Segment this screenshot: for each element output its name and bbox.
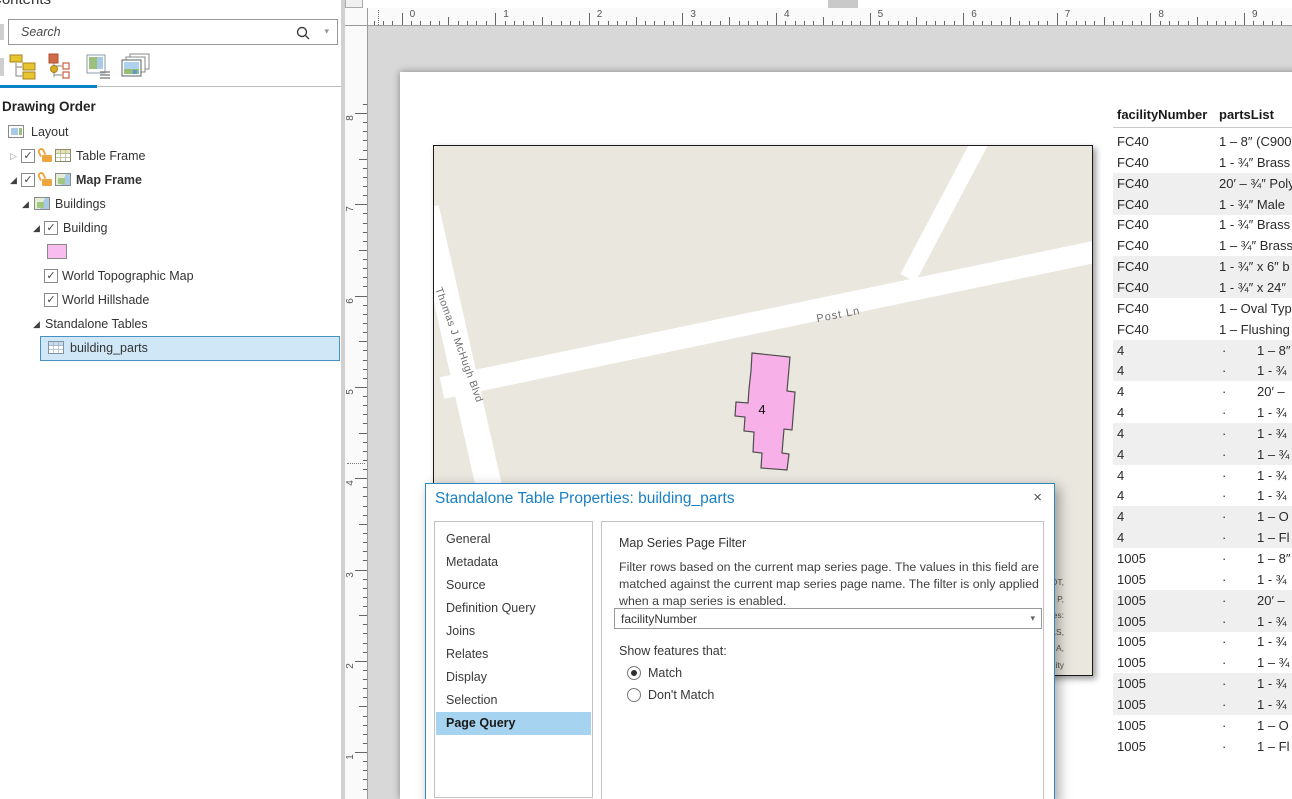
table-row: 1005·1 - ¾ bbox=[1113, 569, 1292, 590]
table-row: 1005·1 - ¾ bbox=[1113, 694, 1292, 715]
cell-partslist: 1 – 8″ bbox=[1257, 343, 1291, 358]
ruler-tick bbox=[363, 223, 368, 224]
ruler-tick bbox=[1160, 21, 1161, 26]
ruler-tick bbox=[1010, 17, 1011, 25]
table-row: 4·1 - ¾ bbox=[1113, 402, 1292, 423]
cell-partslist: 1 - ¾ bbox=[1257, 676, 1287, 691]
ruler-tick bbox=[363, 734, 368, 735]
vertical-ruler: 87654321 bbox=[345, 26, 368, 799]
ruler-tick bbox=[617, 21, 618, 26]
cell-facility: 1005 bbox=[1117, 572, 1146, 587]
ruler-tick bbox=[785, 21, 786, 26]
ruler-tick bbox=[359, 433, 367, 434]
cell-facility: 4 bbox=[1117, 447, 1124, 462]
cell-facility: 1005 bbox=[1117, 739, 1146, 754]
radio-label: Match bbox=[648, 666, 682, 680]
ruler-tick bbox=[359, 250, 367, 251]
cell-facility: FC40 bbox=[1117, 134, 1149, 149]
lock-icon bbox=[42, 155, 52, 162]
cell-dot: · bbox=[1222, 405, 1226, 420]
ruler-tick bbox=[392, 21, 393, 26]
ruler-tick bbox=[991, 21, 992, 26]
ruler-tick bbox=[551, 21, 552, 26]
ruler-tick bbox=[430, 21, 431, 26]
ruler-tick bbox=[363, 241, 368, 242]
tree-item-label: Building bbox=[63, 221, 107, 235]
ruler-tick bbox=[1047, 21, 1048, 26]
ruler-tick bbox=[363, 779, 368, 780]
ruler-number: 5 bbox=[878, 9, 884, 20]
table-row: 4·1 – 8″ bbox=[1113, 340, 1292, 361]
ruler-tick bbox=[870, 13, 871, 25]
ruler-tick bbox=[926, 21, 927, 26]
table-row: 4·1 - ¾ bbox=[1113, 423, 1292, 444]
tree-item-world-topographic-map[interactable]: ✓World Topographic Map bbox=[0, 265, 341, 288]
ruler-tick bbox=[1272, 21, 1273, 26]
cell-dot: · bbox=[1222, 426, 1226, 441]
table-row: 1005·1 – 8″ bbox=[1113, 548, 1292, 569]
ruler-tick bbox=[1038, 21, 1039, 26]
tree-item-building[interactable]: ◢✓Building bbox=[0, 217, 341, 240]
ruler-number: 3 bbox=[690, 9, 696, 20]
dialog-tab-display[interactable]: Display bbox=[436, 666, 591, 689]
ruler-tick bbox=[879, 21, 880, 26]
table-frame-preview[interactable]: facilityNumber partsList FC401 – 8″ (C90… bbox=[1113, 104, 1292, 784]
column-header-partslist: partsList bbox=[1219, 107, 1274, 122]
table-row: FC401 – ¾″ Brass bbox=[1113, 235, 1292, 256]
cell-facility: 1005 bbox=[1117, 593, 1146, 608]
ruler-tick bbox=[359, 706, 367, 707]
ruler-tick bbox=[363, 597, 368, 598]
ruler-tick bbox=[963, 13, 964, 25]
ruler-tick bbox=[823, 17, 824, 25]
ruler-tick bbox=[1122, 21, 1123, 26]
cursor-guide bbox=[378, 10, 379, 25]
cell-facility: 4 bbox=[1117, 384, 1124, 399]
ruler-tick bbox=[748, 21, 749, 26]
cell-dot: · bbox=[1222, 384, 1226, 399]
ruler-tick bbox=[363, 305, 368, 306]
dialog-sidebar: GeneralMetadataSourceDefinition QueryJoi… bbox=[434, 521, 593, 798]
ruler-tick bbox=[1225, 21, 1226, 26]
ruler-tick bbox=[411, 21, 412, 26]
cell-partslist: 1 - ¾ bbox=[1257, 488, 1287, 503]
ruler-tick bbox=[363, 697, 368, 698]
dialog-tab-source[interactable]: Source bbox=[436, 574, 591, 597]
chevron-down-icon[interactable]: ▾ bbox=[1030, 613, 1035, 624]
cell-dot: · bbox=[1222, 551, 1226, 566]
cell-partslist: 1 - ¾″ Brass bbox=[1219, 155, 1290, 170]
ruler-tick bbox=[363, 542, 368, 543]
ruler-tick bbox=[1244, 13, 1245, 25]
visibility-checkbox[interactable]: ✓ bbox=[21, 149, 35, 163]
ruler-tick bbox=[363, 369, 368, 370]
cell-facility: FC40 bbox=[1117, 176, 1149, 191]
ruler-tick bbox=[1057, 13, 1058, 25]
cell-dot: · bbox=[1222, 572, 1226, 587]
table-row: FC401 - ¾″ x 24″ bbox=[1113, 277, 1292, 298]
ruler-number: 9 bbox=[1252, 9, 1258, 20]
building-symbol-swatch[interactable] bbox=[47, 244, 67, 259]
layout-icon bbox=[8, 125, 24, 138]
collapse-icon[interactable]: ◢ bbox=[33, 319, 40, 330]
cell-partslist: 1 – O bbox=[1257, 718, 1289, 733]
ruler-tick bbox=[795, 21, 796, 26]
ruler-tick bbox=[383, 21, 384, 26]
cell-dot: · bbox=[1222, 343, 1226, 358]
ruler-number: 7 bbox=[345, 201, 357, 217]
field-dropdown[interactable]: facilityNumber ▾ bbox=[614, 608, 1042, 629]
building-label: 4 bbox=[758, 402, 765, 417]
cell-dot: · bbox=[1222, 468, 1226, 483]
table-row: 4·1 – Fl bbox=[1113, 527, 1292, 548]
ruler-tick bbox=[1029, 21, 1030, 26]
ruler-tick bbox=[363, 405, 368, 406]
cell-partslist: 1 – O bbox=[1257, 509, 1289, 524]
cell-dot: · bbox=[1222, 363, 1226, 378]
ruler-tick bbox=[589, 13, 590, 25]
cell-partslist: 1 – ¾ bbox=[1257, 655, 1290, 670]
tree-item-label: building_parts bbox=[70, 341, 148, 355]
cell-dot: · bbox=[1222, 509, 1226, 524]
road-branch bbox=[908, 146, 981, 278]
cell-partslist: 20′ – bbox=[1257, 384, 1285, 399]
ruler-tick bbox=[363, 168, 368, 169]
table-row: 1005·1 – O bbox=[1113, 715, 1292, 736]
ruler-number: 7 bbox=[1065, 9, 1071, 20]
dialog-tab-general[interactable]: General bbox=[436, 528, 591, 551]
ruler-tick bbox=[523, 21, 524, 26]
ruler-tick bbox=[363, 506, 368, 507]
ruler-tick bbox=[944, 21, 945, 26]
ruler-tick bbox=[701, 21, 702, 26]
ruler-number: 6 bbox=[345, 293, 357, 309]
ruler-tick bbox=[363, 670, 368, 671]
visibility-checkbox[interactable]: ✓ bbox=[44, 293, 58, 307]
cell-facility: 1005 bbox=[1117, 676, 1146, 691]
ruler-tick bbox=[720, 21, 721, 26]
ruler-tick bbox=[888, 21, 889, 26]
table-row: FC401 - ¾″ Male bbox=[1113, 194, 1292, 215]
ruler-tick bbox=[363, 414, 368, 415]
table-row: FC401 - ¾″ Brass bbox=[1113, 152, 1292, 173]
ruler-tick bbox=[1281, 21, 1282, 26]
dialog-tab-definition-query[interactable]: Definition Query bbox=[436, 597, 591, 620]
ruler-tick bbox=[359, 615, 367, 616]
ruler-tick bbox=[954, 21, 955, 26]
cell-dot: · bbox=[1222, 697, 1226, 712]
ruler-tick bbox=[1019, 21, 1020, 26]
panel-divider[interactable] bbox=[341, 0, 345, 799]
cell-partslist: 1 – Fl bbox=[1257, 739, 1290, 754]
tree-item-buildings[interactable]: ◢Buildings bbox=[0, 193, 341, 216]
table-icon bbox=[48, 341, 64, 354]
ruler-number: 8 bbox=[345, 110, 357, 126]
ruler-tick bbox=[1150, 13, 1151, 25]
radio-button[interactable] bbox=[627, 666, 641, 680]
ruler-tick bbox=[626, 21, 627, 26]
description-line: Filter rows based on the current map ser… bbox=[619, 559, 1039, 576]
table-row: 4·1 – ¾ bbox=[1113, 444, 1292, 465]
tree-item-label: Standalone Tables bbox=[45, 317, 148, 331]
cell-partslist: 1 - ¾ bbox=[1257, 614, 1287, 629]
ruler-tick bbox=[561, 21, 562, 26]
cell-partslist: 1 - ¾ bbox=[1257, 468, 1287, 483]
ruler-tick bbox=[363, 451, 368, 452]
cell-dot: · bbox=[1222, 488, 1226, 503]
cursor-guide bbox=[347, 463, 365, 464]
ruler-tick bbox=[729, 17, 730, 25]
cell-facility: FC40 bbox=[1117, 301, 1149, 316]
ruler-tick bbox=[851, 21, 852, 26]
ruler-tick bbox=[458, 21, 459, 26]
tree-item-world-hillshade[interactable]: ✓World Hillshade bbox=[0, 289, 341, 312]
layers-tree: Layout▷✓Table Frame◢✓Map Frame◢Buildings… bbox=[0, 0, 341, 500]
cell-facility: FC40 bbox=[1117, 280, 1149, 295]
dialog-content: Map Series Page Filter Filter rows based… bbox=[601, 521, 1044, 799]
ruler-tick bbox=[898, 21, 899, 26]
cell-partslist: 1 - ¾″ x 6″ b bbox=[1219, 259, 1290, 274]
ruler-tick bbox=[363, 378, 368, 379]
ruler-number: 4 bbox=[345, 475, 357, 491]
ruler-tick bbox=[1253, 21, 1254, 26]
ruler-tick bbox=[402, 13, 403, 25]
collapse-icon[interactable]: ◢ bbox=[33, 223, 40, 234]
close-icon[interactable]: × bbox=[1033, 489, 1042, 506]
cell-dot: · bbox=[1222, 614, 1226, 629]
ruler-tick bbox=[710, 21, 711, 26]
ruler-tick bbox=[363, 314, 368, 315]
table-row: FC401 - ¾″ Brass bbox=[1113, 214, 1292, 235]
page-filter-description: Filter rows based on the current map ser… bbox=[619, 559, 1039, 610]
cell-dot: · bbox=[1222, 530, 1226, 545]
ruler-tick bbox=[363, 177, 368, 178]
ruler-tick bbox=[476, 21, 477, 26]
ruler-tick bbox=[1235, 21, 1236, 26]
ruler-tick bbox=[363, 396, 368, 397]
table-row: 1005·1 – Fl bbox=[1113, 736, 1292, 757]
ruler-tick bbox=[1132, 21, 1133, 26]
ruler-tick bbox=[832, 21, 833, 26]
ruler-tick bbox=[505, 21, 506, 26]
collapse-icon[interactable]: ◢ bbox=[10, 175, 17, 186]
cell-partslist: 1 – 8″ (C900) bbox=[1219, 134, 1292, 149]
ruler-tick bbox=[1066, 21, 1067, 26]
ruler-number: 5 bbox=[345, 384, 357, 400]
tree-item-layout[interactable]: Layout bbox=[0, 121, 341, 144]
tree-item-building-symbol[interactable] bbox=[0, 242, 341, 265]
cell-facility: 1005 bbox=[1117, 551, 1146, 566]
ruler-number: 3 bbox=[345, 567, 357, 583]
ruler-tick bbox=[363, 579, 368, 580]
ruler-tick bbox=[363, 588, 368, 589]
collapse-icon[interactable]: ◢ bbox=[22, 199, 29, 210]
ruler-tick bbox=[467, 21, 468, 26]
ruler-tick bbox=[1169, 21, 1170, 26]
ruler-tick bbox=[363, 789, 368, 790]
description-line: matched against the current map series p… bbox=[619, 576, 1039, 593]
cell-partslist: 1 – 8″ bbox=[1257, 551, 1291, 566]
ruler-tick bbox=[374, 21, 375, 26]
ruler-tick bbox=[495, 13, 496, 25]
ruler-tick bbox=[363, 606, 368, 607]
page-filter-heading: Map Series Page Filter bbox=[619, 536, 746, 550]
ruler-tick bbox=[1141, 21, 1142, 26]
ruler-number: 6 bbox=[971, 9, 977, 20]
ruler-tick bbox=[363, 268, 368, 269]
cell-partslist: 1 – ¾ bbox=[1257, 447, 1290, 462]
map-icon bbox=[34, 197, 50, 210]
ruler-number: 0 bbox=[410, 9, 416, 20]
dialog-tab-joins[interactable]: Joins bbox=[436, 620, 591, 643]
ruler-tick bbox=[1188, 21, 1189, 26]
ruler-tick bbox=[682, 13, 683, 25]
ruler-tick bbox=[654, 21, 655, 26]
ruler-tick bbox=[363, 496, 368, 497]
ruler-tick bbox=[673, 21, 674, 26]
ruler-tick bbox=[486, 21, 487, 26]
cell-facility: FC40 bbox=[1117, 155, 1149, 170]
ruler-tick bbox=[359, 159, 367, 160]
cell-facility: 4 bbox=[1117, 509, 1124, 524]
ruler-tick bbox=[363, 259, 368, 260]
cell-partslist: 1 - ¾ bbox=[1257, 426, 1287, 441]
show-features-label: Show features that: bbox=[619, 644, 727, 658]
cell-facility: FC40 bbox=[1117, 217, 1149, 232]
ruler-tick bbox=[363, 460, 368, 461]
cell-partslist: 1 - ¾ bbox=[1257, 363, 1287, 378]
ruler-tick bbox=[439, 21, 440, 26]
ruler-tick bbox=[363, 186, 368, 187]
cell-facility: 4 bbox=[1117, 530, 1124, 545]
dialog-title: Standalone Table Properties: building_pa… bbox=[435, 490, 735, 508]
ruler-tick bbox=[757, 21, 758, 26]
table-row: 1005·1 – ¾ bbox=[1113, 652, 1292, 673]
ruler-tick bbox=[363, 323, 368, 324]
column-header-facilitynumber: facilityNumber bbox=[1117, 107, 1207, 122]
ruler-tick bbox=[1001, 21, 1002, 26]
dialog-tab-relates[interactable]: Relates bbox=[436, 643, 591, 666]
cell-facility: 1005 bbox=[1117, 655, 1146, 670]
ruler-tick bbox=[363, 232, 368, 233]
ruler-tick bbox=[542, 17, 543, 25]
tree-item-label: World Topographic Map bbox=[62, 269, 194, 283]
tree-item-label: Map Frame bbox=[76, 173, 142, 187]
visibility-checkbox[interactable]: ✓ bbox=[44, 269, 58, 283]
cell-facility: FC40 bbox=[1117, 238, 1149, 253]
field-dropdown-value: facilityNumber bbox=[621, 612, 697, 626]
expand-icon[interactable]: ▷ bbox=[10, 151, 17, 162]
ruler-tick bbox=[907, 21, 908, 26]
cell-facility: 1005 bbox=[1117, 614, 1146, 629]
ruler-tick bbox=[363, 761, 368, 762]
ruler-tick bbox=[1076, 21, 1077, 26]
cell-facility: 1005 bbox=[1117, 634, 1146, 649]
table-row: 4·1 - ¾ bbox=[1113, 465, 1292, 486]
ruler-tick bbox=[420, 21, 421, 26]
ruler-tick bbox=[363, 150, 368, 151]
ruler-number: 4 bbox=[784, 9, 790, 20]
ruler-tick bbox=[533, 21, 534, 26]
cell-partslist: 1 – Fl bbox=[1257, 530, 1290, 545]
tree-item-standalone-tables[interactable]: ◢Standalone Tables bbox=[0, 313, 341, 336]
cell-partslist: 1 – Flushing bbox=[1219, 322, 1290, 337]
dialog-tab-selection[interactable]: Selection bbox=[436, 689, 591, 712]
ruler-tick bbox=[363, 360, 368, 361]
ui-fragment bbox=[345, 0, 363, 8]
cell-facility: 4 bbox=[1117, 405, 1124, 420]
table-row: 4·1 - ¾ bbox=[1113, 360, 1292, 381]
header-divider bbox=[1113, 127, 1292, 128]
tree-item-building-parts[interactable]: building_parts bbox=[0, 337, 341, 360]
table-frame-icon bbox=[55, 149, 71, 162]
visibility-checkbox[interactable]: ✓ bbox=[21, 173, 35, 187]
cell-partslist: 1 – Oval Type bbox=[1219, 301, 1292, 316]
contents-panel: Contents Search ▾ bbox=[0, 0, 341, 799]
ruler-tick bbox=[363, 213, 368, 214]
dialog-tab-page-query[interactable]: Page Query bbox=[436, 712, 591, 735]
ruler-tick bbox=[363, 643, 368, 644]
ruler-tick bbox=[1197, 17, 1198, 25]
ruler-tick bbox=[363, 195, 368, 196]
ruler-tick bbox=[363, 487, 368, 488]
visibility-checkbox[interactable]: ✓ bbox=[44, 221, 58, 235]
cell-dot: · bbox=[1222, 676, 1226, 691]
ruler-tick bbox=[363, 515, 368, 516]
table-row: 4·1 – O bbox=[1113, 506, 1292, 527]
table-row: FC4020′ – ¾″ Poly bbox=[1113, 173, 1292, 194]
ruler-tick bbox=[363, 286, 368, 287]
table-row: 1005·20′ – bbox=[1113, 590, 1292, 611]
ruler-tick bbox=[363, 423, 368, 424]
ruler-tick bbox=[363, 624, 368, 625]
ruler-tick bbox=[1113, 21, 1114, 26]
tree-item-map-frame[interactable]: ◢✓Map Frame bbox=[0, 169, 341, 192]
radio-button[interactable] bbox=[627, 688, 641, 702]
ruler-tick bbox=[645, 21, 646, 26]
ruler-tick bbox=[363, 533, 368, 534]
cell-dot: · bbox=[1222, 593, 1226, 608]
ruler-tick bbox=[363, 122, 368, 123]
ruler-tick bbox=[359, 341, 367, 342]
ruler-tick bbox=[363, 131, 368, 132]
ruler-tick bbox=[363, 688, 368, 689]
ruler-tick bbox=[359, 524, 367, 525]
ruler-number: 1 bbox=[345, 749, 357, 765]
cell-partslist: 1 – ¾″ Brass bbox=[1219, 238, 1292, 253]
ruler-tick bbox=[570, 21, 571, 26]
standalone-table-properties-dialog: Standalone Table Properties: building_pa… bbox=[425, 483, 1055, 799]
tree-item-table-frame[interactable]: ▷✓Table Frame bbox=[0, 145, 341, 168]
cell-facility: FC40 bbox=[1117, 259, 1149, 274]
ruler-tick bbox=[776, 13, 777, 25]
ruler-tick bbox=[1085, 21, 1086, 26]
lock-icon bbox=[42, 179, 52, 186]
radio-label: Don't Match bbox=[648, 688, 714, 702]
ruler-number: 8 bbox=[1158, 9, 1164, 20]
ruler-tick bbox=[935, 21, 936, 26]
cell-facility: 4 bbox=[1117, 363, 1124, 378]
cell-partslist: 1 - ¾″ Male bbox=[1219, 197, 1285, 212]
table-row: FC401 - ¾″ x 6″ b bbox=[1113, 256, 1292, 277]
ruler-tick bbox=[739, 21, 740, 26]
cell-partslist: 1 - ¾ bbox=[1257, 634, 1287, 649]
tree-item-label: Buildings bbox=[55, 197, 106, 211]
ruler-tick bbox=[363, 679, 368, 680]
ruler-number: 2 bbox=[345, 658, 357, 674]
dialog-tab-metadata[interactable]: Metadata bbox=[436, 551, 591, 574]
cell-partslist: 20′ – ¾″ Poly bbox=[1219, 176, 1292, 191]
